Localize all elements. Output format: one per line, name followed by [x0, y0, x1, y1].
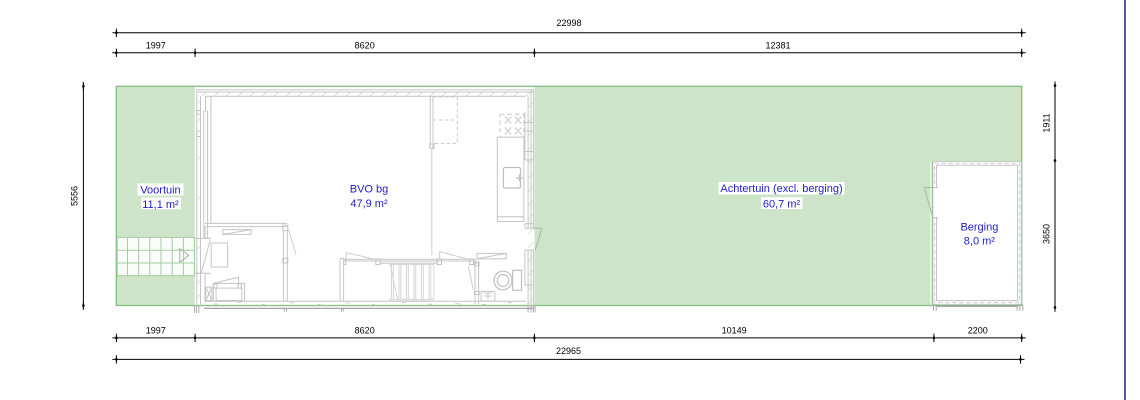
- svg-text:22965: 22965: [556, 346, 581, 356]
- svg-text:Achtertuin (excl. berging): Achtertuin (excl. berging): [720, 183, 842, 195]
- svg-text:5556: 5556: [70, 186, 80, 206]
- svg-text:47,9 m²: 47,9 m²: [350, 198, 388, 210]
- svg-text:Voortuin: Voortuin: [140, 185, 180, 197]
- svg-text:8,0 m²: 8,0 m²: [964, 236, 996, 248]
- svg-text:22998: 22998: [556, 18, 581, 28]
- svg-text:12381: 12381: [765, 41, 790, 51]
- svg-text:1911: 1911: [1042, 113, 1052, 132]
- svg-text:10149: 10149: [722, 326, 747, 336]
- svg-text:3650: 3650: [1042, 224, 1052, 244]
- svg-text:1997: 1997: [146, 326, 166, 336]
- svg-text:Berging: Berging: [960, 222, 998, 234]
- svg-text:2200: 2200: [968, 326, 988, 336]
- svg-text:60,7 m²: 60,7 m²: [763, 199, 801, 211]
- svg-text:8620: 8620: [355, 41, 375, 51]
- svg-text:8620: 8620: [355, 326, 375, 336]
- svg-text:BVO bg: BVO bg: [350, 184, 389, 196]
- svg-text:11,1 m²: 11,1 m²: [142, 199, 179, 211]
- svg-text:1997: 1997: [146, 41, 166, 51]
